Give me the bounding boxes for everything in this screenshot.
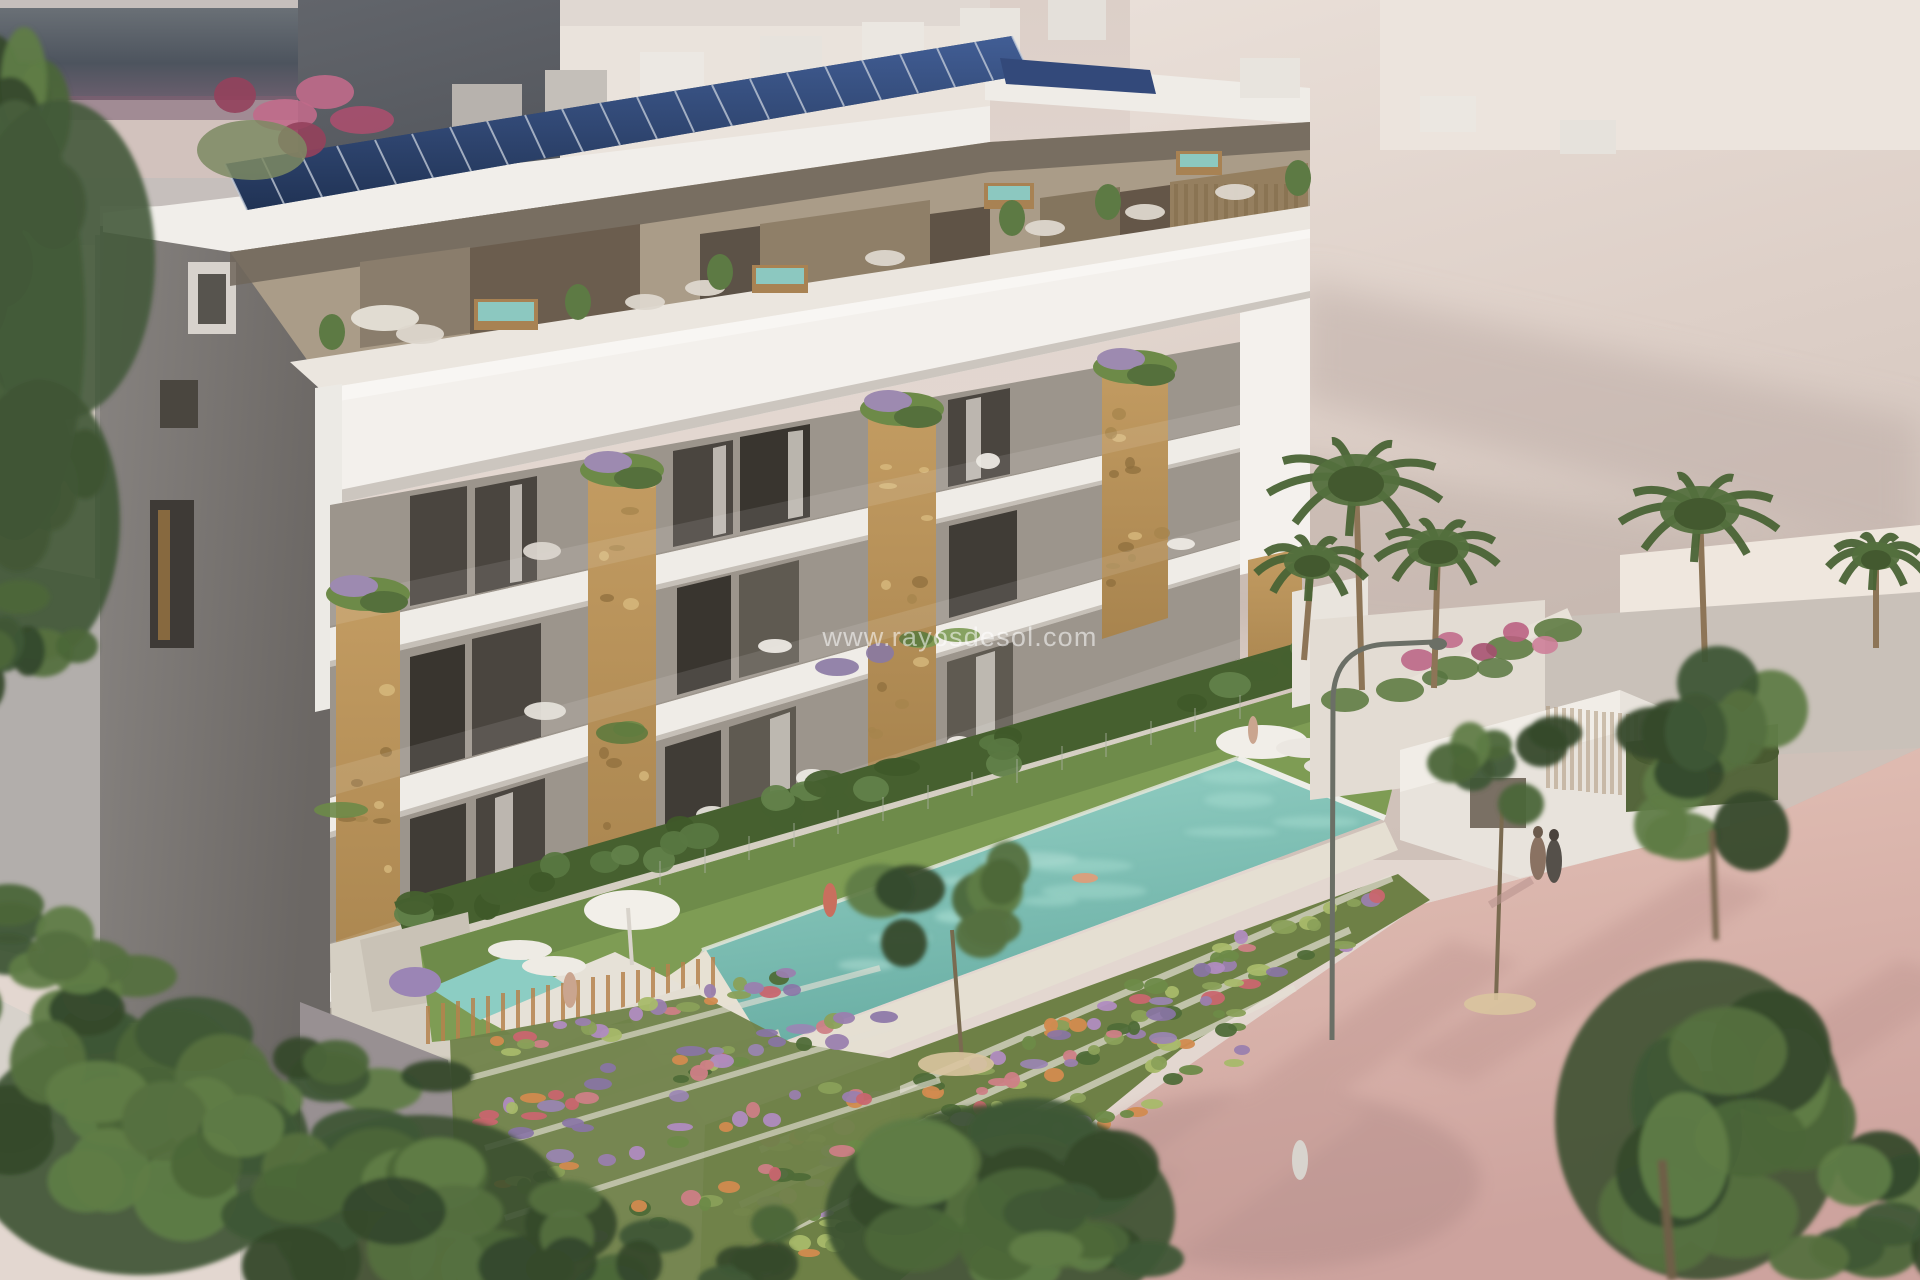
svg-text:www.rayosdesol.com: www.rayosdesol.com [821,622,1097,652]
